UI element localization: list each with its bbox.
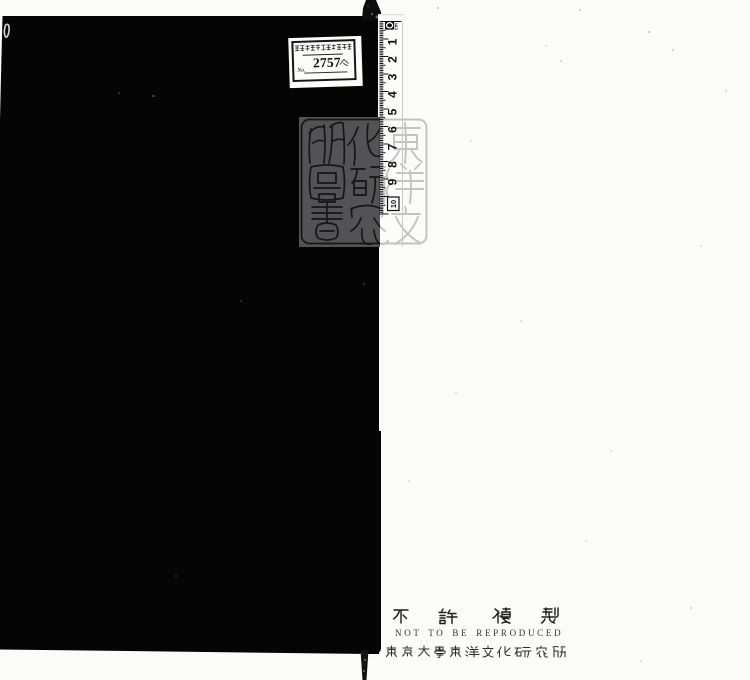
svg-text:8: 8 bbox=[386, 161, 400, 168]
svg-text:6: 6 bbox=[386, 126, 400, 133]
svg-text:4: 4 bbox=[386, 91, 400, 98]
svg-text:10: 10 bbox=[389, 200, 398, 208]
svg-text:2: 2 bbox=[386, 56, 400, 63]
svg-text:7: 7 bbox=[386, 143, 400, 150]
svg-text:1: 1 bbox=[386, 38, 400, 45]
svg-text:cm: cm bbox=[394, 23, 399, 30]
svg-text:5: 5 bbox=[386, 108, 400, 115]
svg-text:3: 3 bbox=[386, 73, 400, 80]
svg-text:9: 9 bbox=[386, 178, 400, 185]
